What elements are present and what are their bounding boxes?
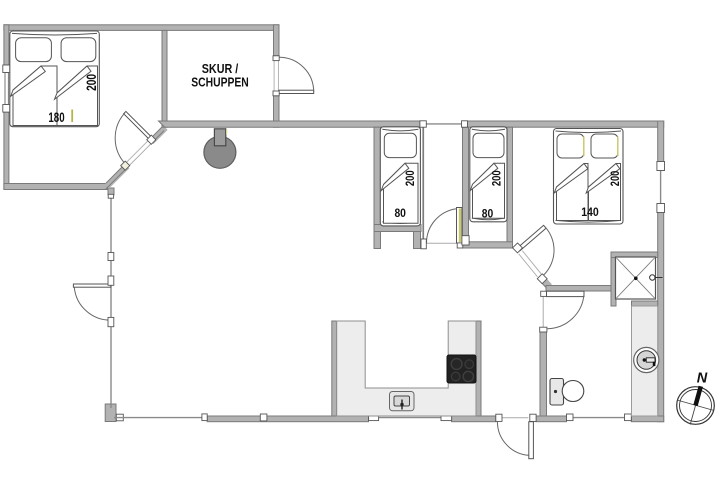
svg-text:200: 200 — [403, 170, 417, 186]
svg-text:140: 140 — [581, 205, 599, 219]
svg-text:200: 200 — [608, 171, 622, 186]
svg-text:200: 200 — [84, 74, 99, 91]
svg-text:N: N — [697, 371, 708, 387]
svg-text:SCHUPPEN: SCHUPPEN — [191, 75, 249, 90]
svg-text:80: 80 — [394, 206, 406, 220]
svg-text:80: 80 — [482, 207, 494, 221]
svg-text:180: 180 — [48, 109, 64, 125]
svg-text:200: 200 — [490, 170, 504, 186]
